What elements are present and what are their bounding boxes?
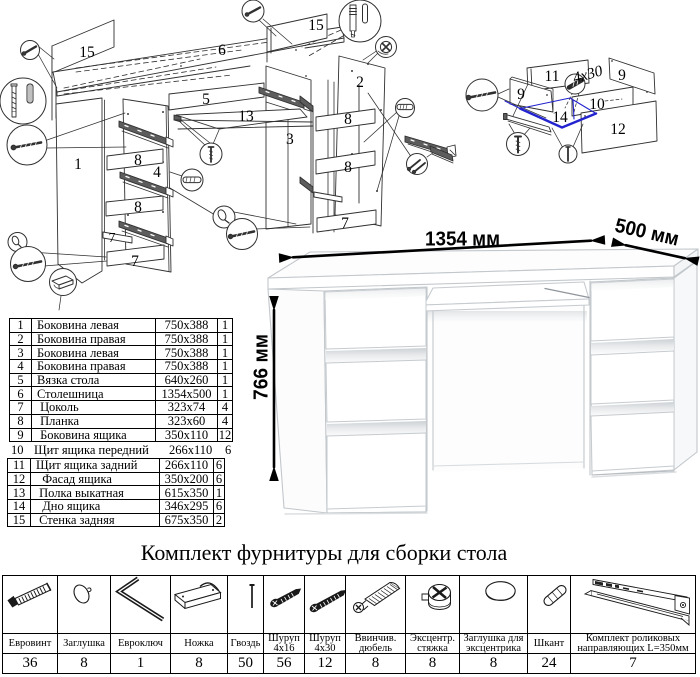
- svg-text:12: 12: [610, 121, 626, 138]
- svg-text:5: 5: [202, 91, 210, 108]
- svg-text:3: 3: [286, 131, 294, 148]
- svg-text:13: 13: [238, 108, 254, 125]
- svg-text:2: 2: [356, 74, 364, 91]
- svg-text:8: 8: [344, 111, 352, 128]
- svg-text:6: 6: [218, 42, 226, 59]
- svg-text:7: 7: [131, 253, 139, 270]
- svg-text:10: 10: [589, 96, 605, 113]
- svg-text:7: 7: [109, 230, 116, 245]
- svg-text:8: 8: [134, 152, 142, 169]
- svg-text:8: 8: [344, 159, 352, 176]
- svg-text:7: 7: [341, 215, 349, 232]
- svg-text:15: 15: [308, 17, 324, 34]
- svg-text:8: 8: [134, 199, 142, 216]
- svg-text:9: 9: [517, 86, 525, 103]
- svg-text:1: 1: [74, 156, 82, 173]
- svg-text:1354 мм: 1354 мм: [425, 229, 500, 251]
- svg-text:9: 9: [618, 67, 626, 84]
- svg-text:14: 14: [552, 109, 568, 126]
- svg-text:766 мм: 766 мм: [251, 334, 273, 400]
- svg-text:11: 11: [545, 68, 560, 85]
- svg-text:4: 4: [153, 164, 161, 181]
- svg-text:500 мм: 500 мм: [613, 215, 681, 251]
- svg-text:15: 15: [79, 44, 95, 61]
